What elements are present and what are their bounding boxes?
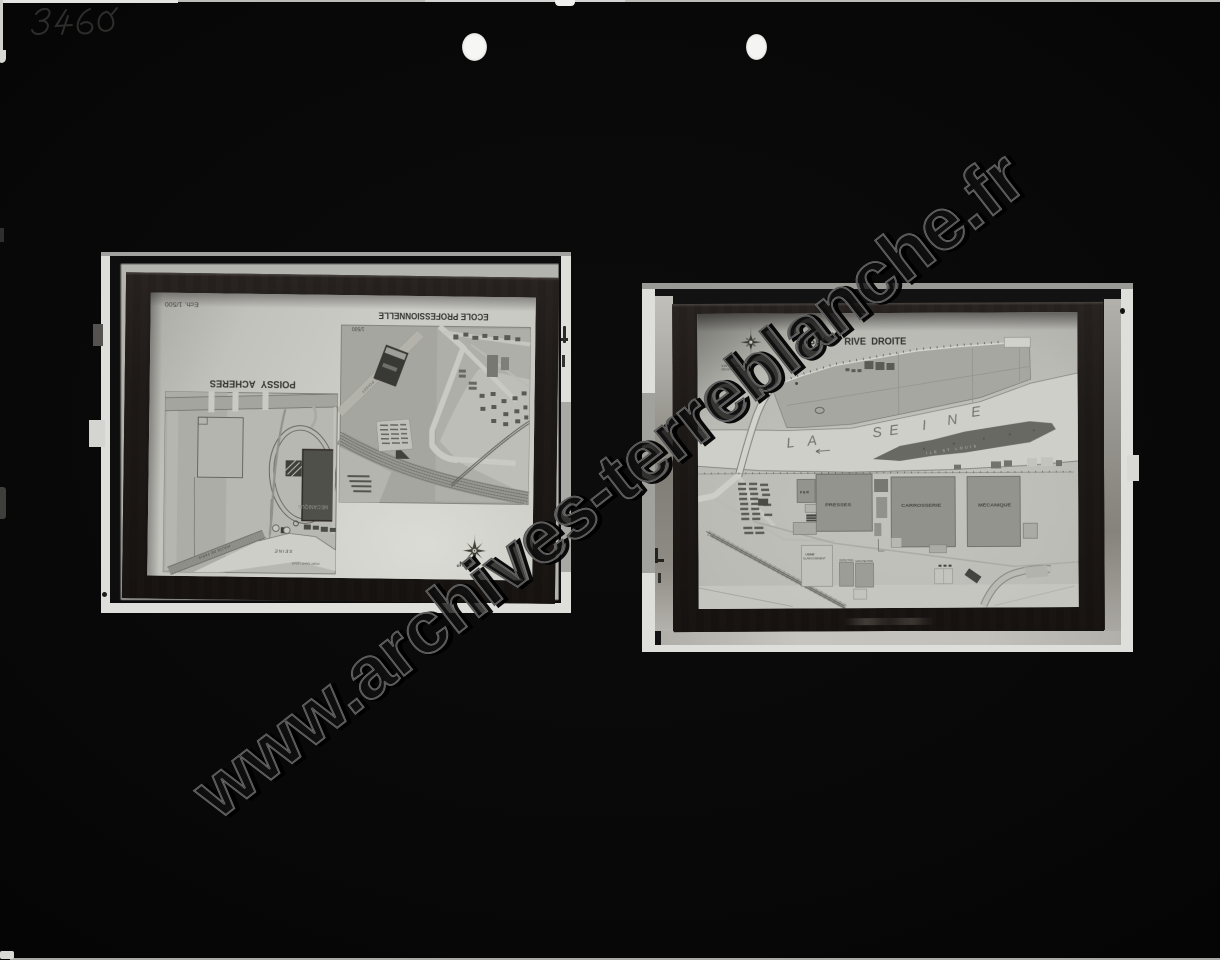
svg-text:www.archives-terreblanche.fr: www.archives-terreblanche.fr	[177, 136, 1039, 835]
